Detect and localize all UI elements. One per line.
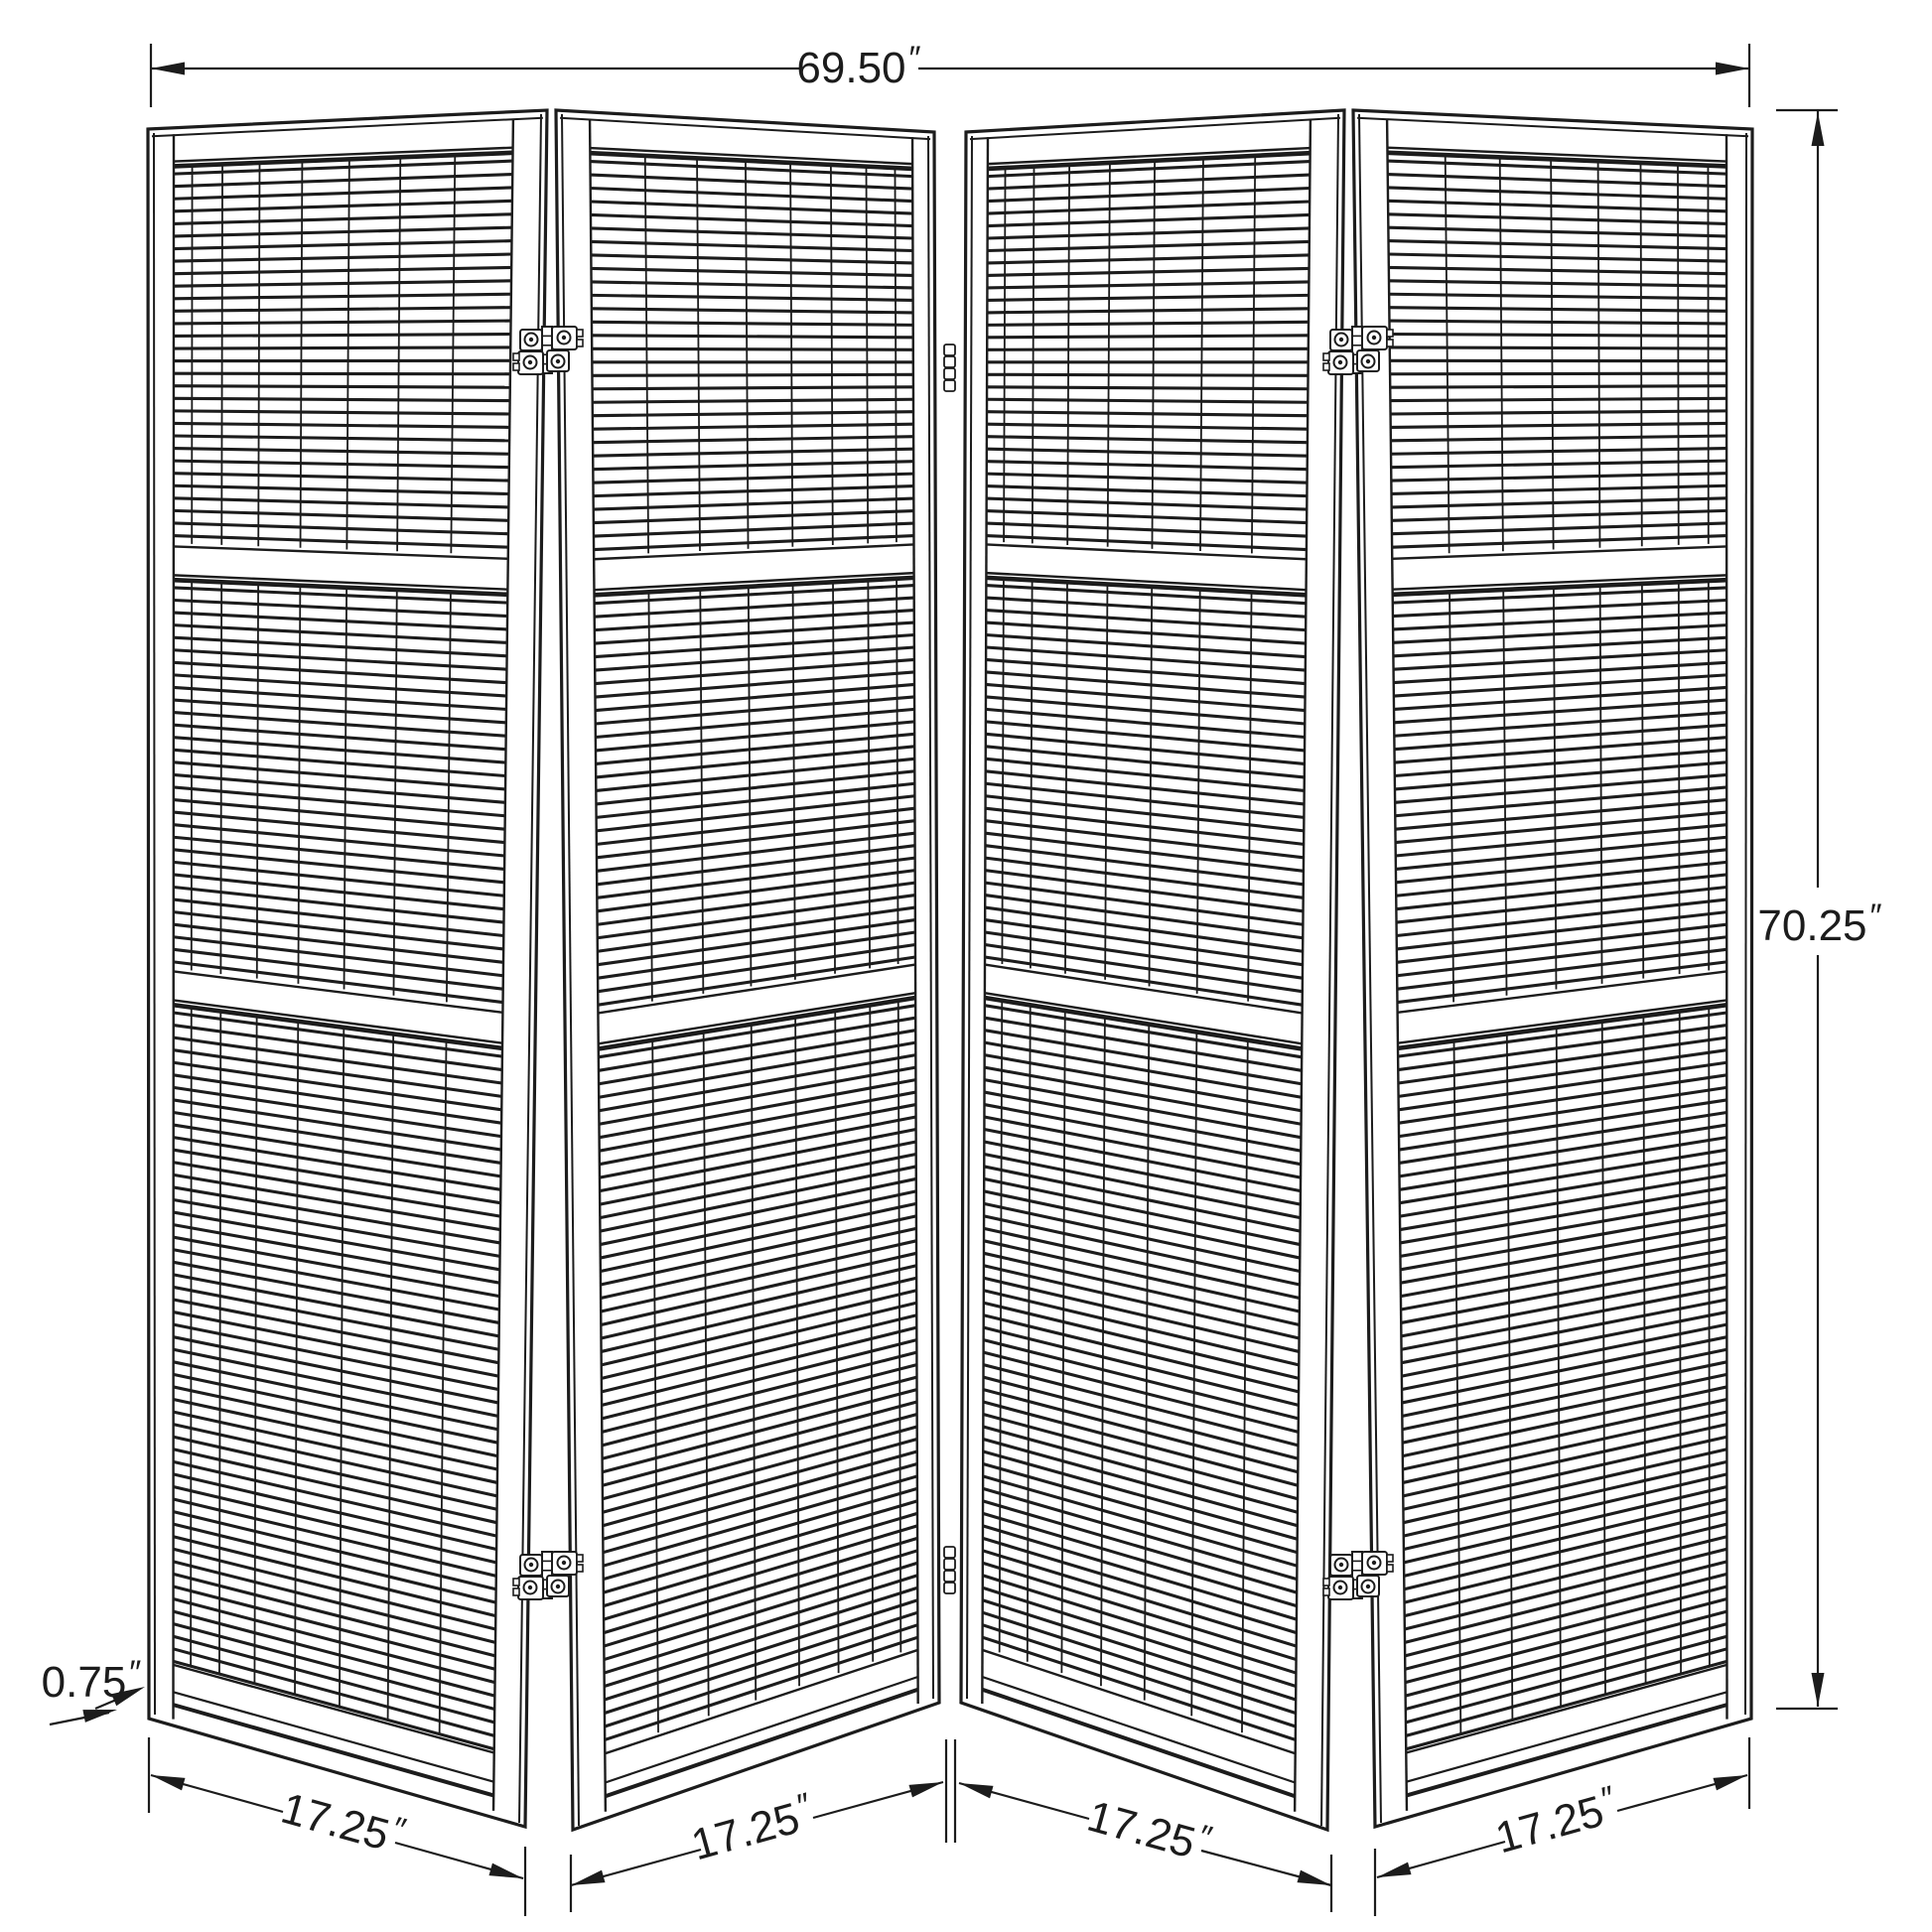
dim-overall-width: 69.50″ <box>151 40 1749 107</box>
dim-overall-height: 70.25″ <box>1757 110 1881 1709</box>
hinge-top-panel2-3 <box>944 345 955 391</box>
panel-4 <box>1353 110 1752 1827</box>
room-divider-dimension-diagram: 69.50″ 70.25″ 0.75″ 17.25″ 17.25″ 17.25″… <box>0 0 1932 1932</box>
panel-2-width-label: 17.25″ <box>685 1786 819 1870</box>
panel-2 <box>556 110 939 1830</box>
panel-3 <box>961 110 1344 1830</box>
dim-panel-thickness: 0.75″ <box>42 1654 145 1725</box>
panel-1-width-label: 17.25″ <box>276 1780 410 1864</box>
diagram-canvas: 69.50″ 70.25″ 0.75″ 17.25″ 17.25″ 17.25″… <box>0 0 1932 1932</box>
overall-width-label: 69.50″ <box>796 40 920 92</box>
hinge-bottom-panel2-3 <box>944 1547 955 1593</box>
overall-height-label: 70.25″ <box>1757 897 1881 950</box>
panel-4-width-label: 17.25″ <box>1489 1779 1623 1863</box>
panel-3-width-label: 17.25″ <box>1082 1788 1216 1872</box>
panel-1 <box>148 110 547 1827</box>
